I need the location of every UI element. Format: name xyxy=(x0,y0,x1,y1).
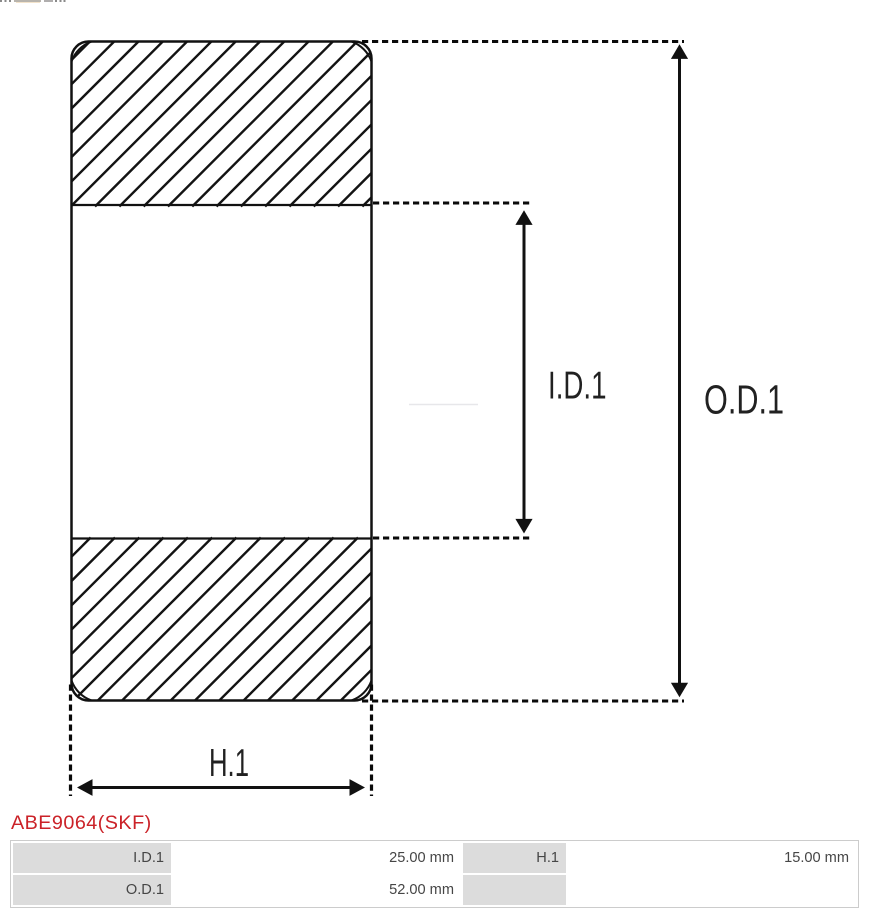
svg-text:I.D.1: I.D.1 xyxy=(548,365,607,408)
svg-text:O.D.1: O.D.1 xyxy=(704,377,784,423)
svg-text:H.1: H.1 xyxy=(209,742,249,785)
